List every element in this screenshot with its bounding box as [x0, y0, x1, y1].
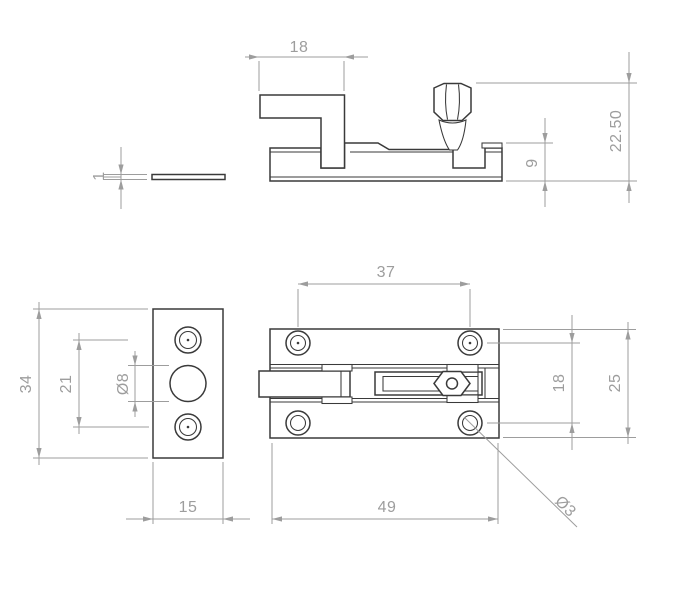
dim-arrowhead: [298, 281, 308, 286]
dim-arrowhead: [625, 428, 630, 438]
dim-label-hole-span-width: 18: [551, 374, 568, 393]
dim-label-body-width: 25: [607, 374, 624, 393]
technical-drawing-sheet: 1 18 22.50: [0, 0, 673, 600]
dim-arrowhead: [36, 448, 41, 458]
dim-base-height: 9: [506, 118, 553, 207]
dim-arrowhead: [569, 423, 574, 433]
side-view: [260, 84, 502, 182]
bolt-guide-flange: [322, 397, 352, 404]
dim-label-bolt-length: 18: [290, 39, 309, 56]
hole-center-mark: [297, 342, 300, 345]
dim-arrowhead: [542, 133, 547, 143]
dim-arrowhead: [118, 180, 123, 190]
dim-label-body-length: 49: [378, 499, 397, 516]
dim-body-width: 25: [503, 322, 636, 444]
dim-arrowhead: [626, 73, 631, 83]
thin-plate-profile: [152, 175, 225, 180]
knob-head: [434, 84, 471, 121]
dim-hole-span-width: 18: [487, 315, 580, 450]
dim-label-thickness: 1: [91, 171, 108, 180]
hole-center-mark: [187, 426, 190, 429]
dim-arrowhead: [36, 309, 41, 319]
dim-body-length: 49: [272, 443, 498, 524]
dim-arrowhead: [272, 516, 282, 521]
dim-keeper-width: 15: [126, 462, 250, 524]
dim-arrowhead: [118, 165, 123, 175]
bolt-guide-flange: [322, 365, 352, 372]
dim-arrowhead: [344, 54, 354, 59]
dim-label-overall-height: 22.50: [608, 110, 625, 153]
plan-view: [259, 329, 499, 438]
plate-side-view: [152, 175, 225, 180]
dim-label-center-hole-diameter: Ø8: [115, 373, 132, 395]
dim-label-hole-span-length: 37: [377, 264, 396, 281]
hole-center-mark: [187, 339, 190, 342]
dim-arrowhead: [132, 402, 137, 412]
hole-center-mark: [469, 342, 472, 345]
dim-arrowhead: [76, 340, 81, 350]
dim-arrowhead: [223, 516, 233, 521]
keeper-plate-view: [153, 309, 223, 458]
knob-stem-plan: [447, 378, 458, 389]
dim-arrowhead: [626, 181, 631, 191]
dim-arrowhead: [143, 516, 153, 521]
dim-label-screw-hole-diameter: Ø3: [551, 493, 579, 521]
dim-label-keeper-height: 34: [18, 375, 35, 394]
dim-arrowhead: [625, 330, 630, 340]
dim-arrowhead: [76, 417, 81, 427]
dim-arrowhead: [249, 54, 259, 59]
screw-hole: [286, 411, 310, 435]
dim-screw-hole-diameter: Ø3: [464, 417, 579, 527]
base-profile: [270, 143, 502, 181]
dim-arrowhead: [488, 516, 498, 521]
dim-arrowhead: [132, 356, 137, 366]
end-stop-tab: [482, 143, 502, 148]
dim-label-hole-spacing: 21: [58, 375, 75, 394]
dim-label-keeper-width: 15: [179, 499, 198, 516]
dim-arrowhead: [542, 181, 547, 191]
dim-arrowhead: [460, 281, 470, 286]
dim-hole-span-length: 37: [298, 264, 470, 327]
bolt-bar: [259, 371, 350, 397]
center-hole: [170, 366, 206, 402]
dim-arrowhead: [569, 333, 574, 343]
dim-bolt-length: 18: [245, 39, 368, 91]
dim-plate-thickness: 1: [91, 147, 147, 209]
knob-stem: [439, 120, 466, 150]
barrel-bolt-drawing: 1 18 22.50: [0, 0, 673, 600]
dim-label-base-height: 9: [524, 158, 541, 167]
